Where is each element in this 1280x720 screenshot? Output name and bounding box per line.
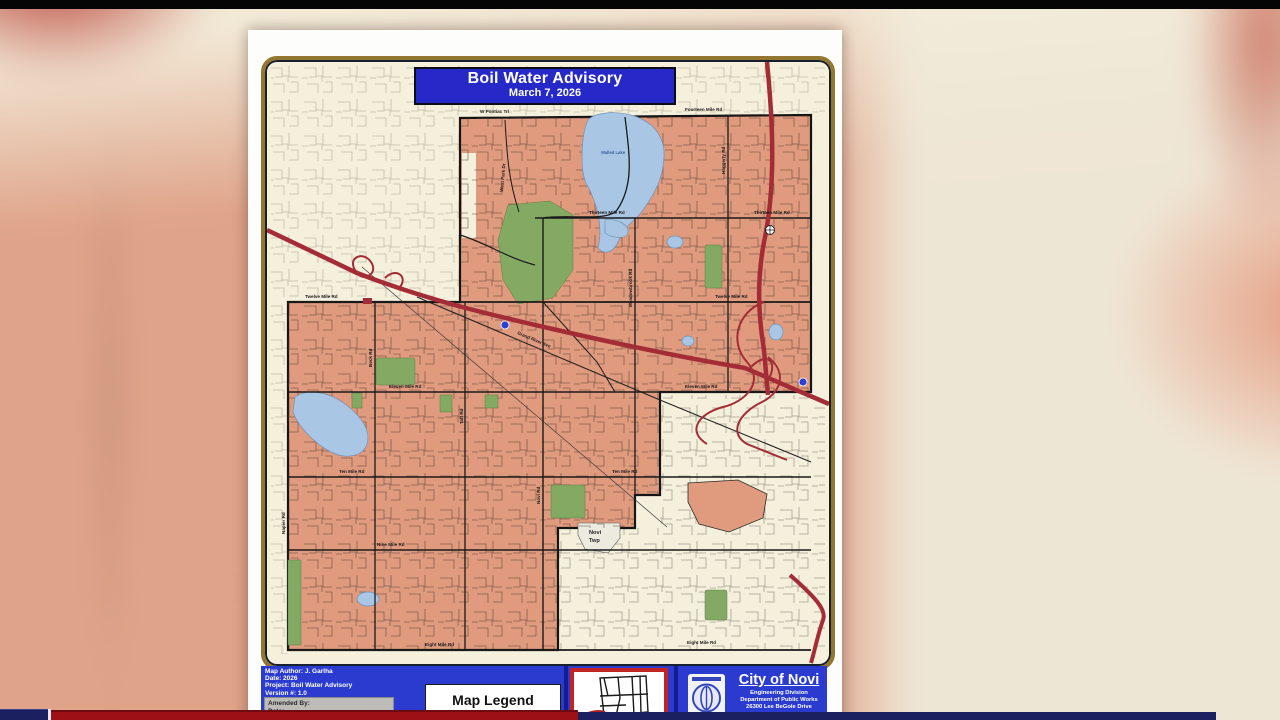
svg-text:Eight Mile Rd: Eight Mile Rd xyxy=(687,640,716,645)
map-canvas: Walled Lake xyxy=(267,62,829,664)
walled-lake-label: Walled Lake xyxy=(601,150,626,155)
svg-text:Haggerty Rd: Haggerty Rd xyxy=(721,146,726,174)
advisory-banner: Boil Water Advisory March 7, 2026 xyxy=(414,67,676,105)
svg-text:Meadowbrook Rd: Meadowbrook Rd xyxy=(628,269,633,307)
banner-title: Boil Water Advisory xyxy=(416,70,674,87)
agency-department: Department of Public Works xyxy=(731,697,827,704)
banner-date: March 7, 2026 xyxy=(416,87,674,99)
svg-text:Twp: Twp xyxy=(589,538,600,544)
top-letterbox-bar xyxy=(0,0,1280,9)
broadcast-frame: Walled Lake xyxy=(0,0,1280,720)
svg-text:Nine Mile Rd: Nine Mile Rd xyxy=(377,542,405,547)
map-legend-label: Map Legend xyxy=(452,692,534,708)
advisory-document-page: Walled Lake xyxy=(248,30,842,720)
svg-text:Ten Mile Rd: Ten Mile Rd xyxy=(612,469,638,474)
agency-division: Engineering Division xyxy=(731,690,827,697)
svg-text:Taft Rd: Taft Rd xyxy=(459,408,464,424)
svg-text:Twelve Mile Rd: Twelve Mile Rd xyxy=(305,294,338,299)
svg-text:Eight Mile Rd: Eight Mile Rd xyxy=(425,642,454,647)
author-line: Date: 2026 xyxy=(265,675,352,682)
svg-text:Novi: Novi xyxy=(589,530,602,536)
svg-text:Novi Rd: Novi Rd xyxy=(536,486,541,504)
svg-text:Thirteen Mile Rd: Thirteen Mile Rd xyxy=(754,210,790,215)
lower-third-navy-bar xyxy=(578,712,1216,720)
author-line: Version #: 1.0 xyxy=(265,690,352,697)
svg-text:Fourteen Mile Rd: Fourteen Mile Rd xyxy=(685,107,722,112)
svg-text:Eleven Mile Rd: Eleven Mile Rd xyxy=(685,384,718,389)
svg-text:W Pontiac Trl: W Pontiac Trl xyxy=(480,109,509,114)
author-line: Map Author: J. Garlha xyxy=(265,668,352,675)
svg-text:Twelve Mile Rd: Twelve Mile Rd xyxy=(715,294,748,299)
map-author-block: Map Author: J. Garlha Date: 2026 Project… xyxy=(265,668,352,697)
city-of-novi-logo xyxy=(688,674,725,716)
svg-text:Thirteen Mile Rd: Thirteen Mile Rd xyxy=(589,210,625,215)
svg-text:Beck Rd: Beck Rd xyxy=(368,348,373,367)
lower-third-navy-block xyxy=(0,709,48,720)
svg-text:Ten Mile Rd: Ten Mile Rd xyxy=(339,469,365,474)
amended-line: Amended By: xyxy=(268,700,390,708)
lower-third-red-bar xyxy=(51,710,578,720)
agency-name: City of Novi xyxy=(731,672,827,688)
novi-advisory-map: Walled Lake xyxy=(267,62,829,664)
agency-address: 26300 Lee BeGole Drive xyxy=(731,704,827,711)
svg-text:Eleven Mile Rd: Eleven Mile Rd xyxy=(389,384,422,389)
author-line: Project: Boil Water Advisory xyxy=(265,682,352,689)
map-frame: Walled Lake xyxy=(261,56,835,670)
agency-text-block: City of Novi Engineering Division Depart… xyxy=(731,672,827,711)
svg-text:Napier Rd: Napier Rd xyxy=(281,512,286,534)
